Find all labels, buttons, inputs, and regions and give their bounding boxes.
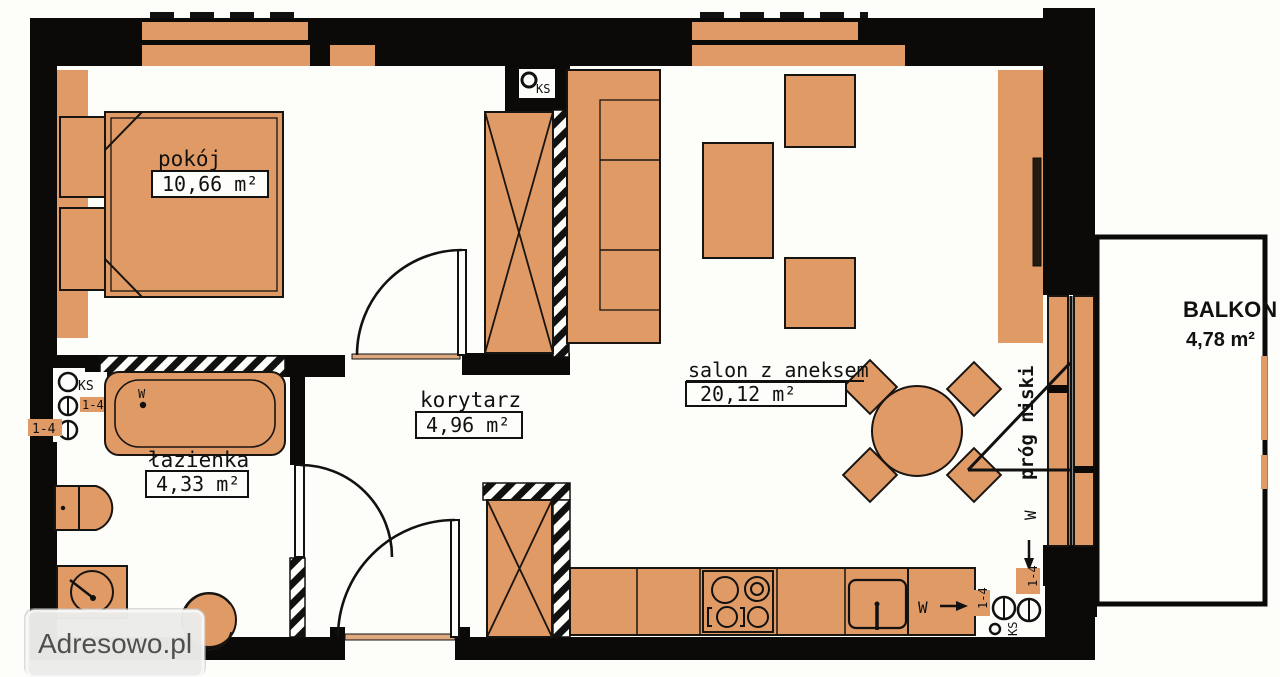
door-entrance <box>338 520 459 640</box>
tub-tap-icon <box>140 402 146 408</box>
balcony-outline <box>1097 237 1265 604</box>
room-area-salon: 20,12 m² <box>700 382 796 406</box>
meter-range-label: 1-4 <box>32 422 56 437</box>
toilet-tank <box>55 486 79 530</box>
room-name-balkon: BALKON <box>1183 297 1277 322</box>
radiator-salon <box>1033 158 1041 266</box>
door-bedroom <box>352 250 466 359</box>
armchair <box>785 258 855 328</box>
balcony-railing <box>1261 455 1267 489</box>
room-name-lazienka: łazienka <box>148 448 249 472</box>
watermark-text: Adresowo.pl <box>38 628 192 659</box>
bed <box>105 112 283 297</box>
hatched-wall-corridor-salon-cap <box>483 483 570 500</box>
bedroom-furniture <box>57 70 283 338</box>
bathtub <box>105 372 285 455</box>
room-area-pokoj: 10,66 m² <box>162 172 258 196</box>
meter-range-label: 1-4 <box>82 398 104 412</box>
nightstand <box>60 208 105 290</box>
dining-table <box>872 386 962 476</box>
bathroom-fixtures: KS 1-4 1-4 W <box>28 368 285 650</box>
toilet-bowl <box>79 486 112 530</box>
hatched-wall-corridor-salon-lower <box>553 500 570 637</box>
door-bathroom <box>295 465 392 557</box>
coffee-table <box>703 143 773 258</box>
prog-niski-label: próg niski <box>1016 366 1038 480</box>
armchair <box>785 75 855 147</box>
floor-plan: KS 1-4 1-4 W <box>0 0 1280 677</box>
room-name-korytarz: korytarz <box>420 388 521 412</box>
bedroom-side-shelf <box>57 70 88 338</box>
room-name-salon: salon z aneksem <box>688 358 869 382</box>
wardrobe-lower <box>487 500 552 637</box>
meter-range-label: 1-4 <box>976 587 990 609</box>
room-area-balkon: 4,78 m² <box>1186 329 1255 351</box>
ks-label-kitchen: KS <box>1006 622 1020 636</box>
w-label-rotated: W <box>1021 510 1040 520</box>
balcony-door-panel <box>1074 296 1094 546</box>
nightstand <box>60 117 105 197</box>
room-name-pokoj: pokój <box>158 147 221 171</box>
balcony <box>1097 237 1267 604</box>
meter-range-label: 1-4 <box>1026 565 1040 587</box>
floor-plan-canvas: KS 1-4 1-4 W <box>0 0 1280 677</box>
room-area-korytarz: 4,96 m² <box>426 413 510 437</box>
tub-tap-label: W <box>138 387 146 401</box>
room-area-lazienka: 4,33 m² <box>156 472 240 496</box>
hatched-wall-bath-corridor <box>290 558 305 637</box>
kitchen-counter <box>570 568 975 635</box>
ks-box-top: KS <box>519 69 555 98</box>
salon-furniture <box>567 70 1043 502</box>
radiator-bedroom <box>330 45 375 66</box>
balcony-railing <box>1261 356 1267 440</box>
ks-label-bath: KS <box>78 379 94 394</box>
wardrobe-upper <box>485 112 553 353</box>
w-label: W <box>918 598 928 617</box>
ks-label-top: KS <box>536 82 550 96</box>
sofa <box>567 70 660 343</box>
balcony-door-panel <box>1048 296 1068 546</box>
watermark: Adresowo.pl <box>24 608 206 677</box>
